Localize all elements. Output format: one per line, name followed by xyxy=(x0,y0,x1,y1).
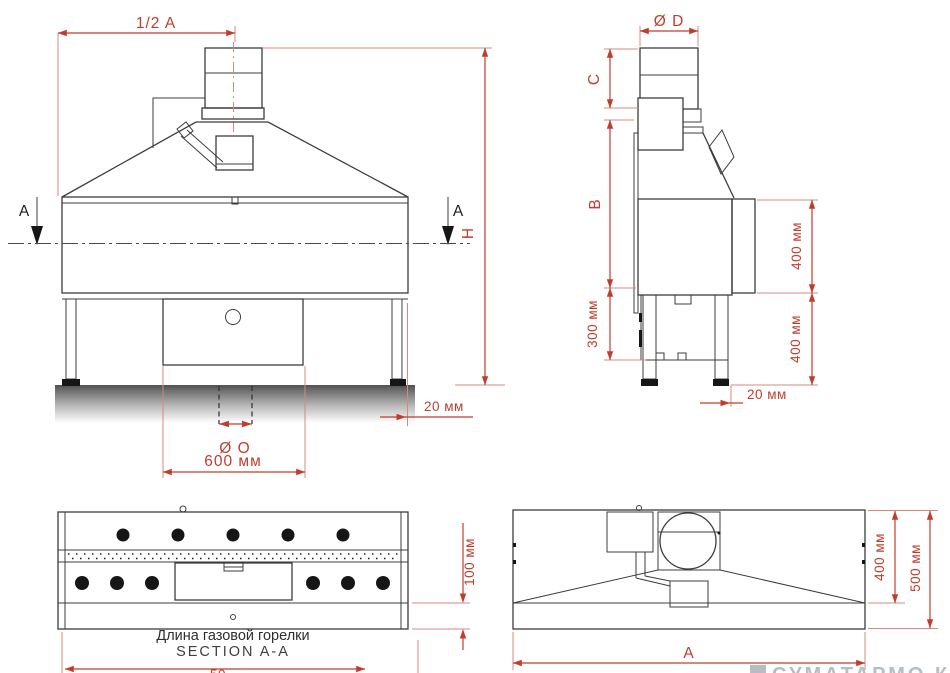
firebox-body xyxy=(62,197,408,293)
top-fan-box xyxy=(607,512,653,552)
label-dia-d: Ø D xyxy=(654,13,685,30)
label-100: 100 мм xyxy=(462,538,477,586)
top-small-dot xyxy=(718,532,721,535)
fireplace-dimension-drawing: A A 1/2 A H 600 мм Ø O xyxy=(0,0,950,673)
front-view: A A 1/2 A H 600 мм Ø O xyxy=(8,15,505,478)
fan-housing-outline xyxy=(153,98,205,148)
technical-drawing-page: A A 1/2 A H 600 мм Ø O xyxy=(0,0,950,673)
burner-holes-row1 xyxy=(117,529,350,542)
top-dimensions: 400 мм 500 мм A xyxy=(513,511,938,671)
section-caption-ru: Длина газовой горелки xyxy=(156,628,309,644)
burner-hole-dot xyxy=(306,576,320,590)
watermark: СУМАТАРМО.КМ xyxy=(750,664,950,673)
top-duct-connector xyxy=(645,576,670,581)
label-500-top-view: 500 мм xyxy=(908,544,923,592)
ground-shadow xyxy=(55,385,415,423)
label-c: C xyxy=(586,73,603,85)
edge-tick xyxy=(513,543,516,547)
label-h: H xyxy=(460,227,477,239)
burner-holes-row2 xyxy=(75,576,390,590)
label-400-top: 400 мм xyxy=(789,222,804,270)
burner-box xyxy=(163,299,303,365)
side-right-foot xyxy=(713,379,729,386)
burner-hole-dot xyxy=(282,529,295,542)
frame-tab xyxy=(656,353,664,360)
leg-mark xyxy=(639,313,642,322)
section-label-a-left: A xyxy=(19,203,30,220)
label-400-bottom: 400 мм xyxy=(788,315,803,363)
equipment-box xyxy=(216,136,253,170)
right-foot xyxy=(390,379,406,386)
burner-hole-dot xyxy=(145,576,159,590)
side-hood-slope xyxy=(703,133,734,198)
top-chimney-circle xyxy=(660,513,716,569)
burner-hole-dot xyxy=(110,576,124,590)
edge-tick xyxy=(862,560,865,564)
burner-hole xyxy=(226,310,241,325)
label-a-width: A xyxy=(683,645,694,662)
watermark-text: СУМАТАРМО.КМ xyxy=(772,664,950,673)
hood-slopes xyxy=(62,122,408,197)
burner-hole-dot xyxy=(172,529,185,542)
left-foot xyxy=(62,379,80,386)
label-cropped-dim: 50 xyxy=(210,667,226,673)
arrowhead xyxy=(721,400,731,406)
section-label-a-right: A xyxy=(453,203,464,220)
edge-tick xyxy=(862,543,865,547)
side-collar-step2 xyxy=(683,127,703,133)
watermark-logo-square xyxy=(750,665,766,673)
section-marker-left: A xyxy=(19,197,43,245)
top-duct-connector xyxy=(636,578,670,586)
label-20: 20 мм xyxy=(424,399,464,414)
top-pilot-hole xyxy=(180,506,186,512)
top-hood-fold-right xyxy=(720,570,865,603)
label-400-top-view: 400 мм xyxy=(872,533,887,581)
side-rear-box xyxy=(732,199,755,293)
top-chimney-housing xyxy=(658,512,720,570)
burner-hole-dot xyxy=(337,529,350,542)
bottom-pilot-hole xyxy=(231,615,236,620)
side-dimensions: Ø D C B 300 мм 400 мм 400 мм 20 мм xyxy=(585,13,818,407)
burner-hole-dot xyxy=(75,576,89,590)
frame-tab xyxy=(678,353,686,360)
left-leg xyxy=(66,299,76,379)
frame-notch xyxy=(675,295,691,304)
top-view: 400 мм 500 мм A xyxy=(513,506,938,671)
label-b: B xyxy=(587,198,604,209)
burner-hole-dot xyxy=(376,576,390,590)
label-300: 300 мм xyxy=(585,300,600,348)
burner-hole-dot xyxy=(341,576,355,590)
arrowhead xyxy=(460,594,466,604)
side-collar-step1 xyxy=(683,109,701,122)
leg-mark xyxy=(639,330,642,347)
right-leg xyxy=(392,299,402,379)
label-dia-o: Ø O xyxy=(219,440,250,457)
side-left-foot xyxy=(641,379,658,386)
side-fan-box xyxy=(638,98,683,150)
burner-hole-dot xyxy=(227,529,240,542)
burner-hole-dot xyxy=(117,529,130,542)
side-right-leg xyxy=(715,295,728,379)
label-half-a: 1/2 A xyxy=(136,15,176,32)
side-body xyxy=(638,199,732,295)
section-caption-en: SECTION A-A xyxy=(176,644,290,660)
burner-tray xyxy=(175,563,292,600)
label-20-side: 20 мм xyxy=(747,387,787,402)
side-left-leg xyxy=(643,295,656,379)
section-view: 100 мм 50 Длина газовой горелки SECTION … xyxy=(58,506,477,673)
edge-tick xyxy=(513,560,516,564)
arrowhead xyxy=(460,629,466,639)
side-view: Ø D C B 300 мм 400 мм 400 мм 20 мм xyxy=(585,13,818,407)
